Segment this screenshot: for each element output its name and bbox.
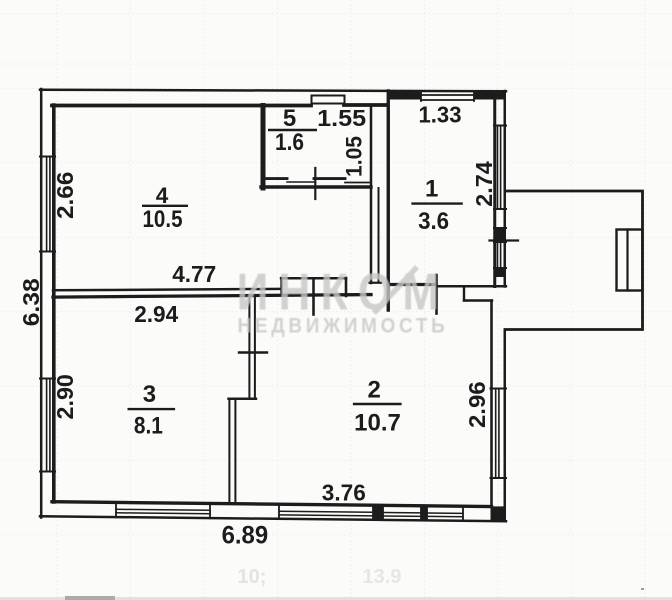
svg-text:5: 5 [283,105,296,132]
svg-text:10.5: 10.5 [143,206,183,233]
svg-text:10.7: 10.7 [354,410,401,437]
svg-text:1.05: 1.05 [342,136,367,177]
svg-text:2: 2 [368,377,381,404]
svg-text:6.89: 6.89 [222,522,269,550]
svg-text:4: 4 [156,183,169,208]
svg-text:2.66: 2.66 [52,172,78,220]
svg-text:2.74: 2.74 [471,161,497,207]
svg-text:2.96: 2.96 [464,381,490,428]
svg-text:8.1: 8.1 [134,413,163,440]
svg-text:1.33: 1.33 [419,102,462,128]
svg-text:1.6: 1.6 [275,129,304,156]
svg-text:1: 1 [425,176,438,203]
svg-text:3: 3 [143,381,156,408]
svg-text:1.55: 1.55 [317,105,366,131]
svg-text:3.76: 3.76 [322,480,366,506]
svg-text:НЕДВИЖИМОСТЬ: НЕДВИЖИМОСТЬ [238,314,449,337]
svg-text:2.90: 2.90 [52,374,78,419]
svg-text:3.6: 3.6 [418,208,449,235]
svg-text:13.9: 13.9 [363,566,402,588]
svg-text:2.94: 2.94 [134,301,178,327]
svg-text:10;: 10; [238,566,267,588]
svg-text:6.38: 6.38 [18,278,44,326]
svg-text:4.77: 4.77 [172,261,216,287]
svg-text:ИНКОМ: ИНКОМ [237,263,450,321]
